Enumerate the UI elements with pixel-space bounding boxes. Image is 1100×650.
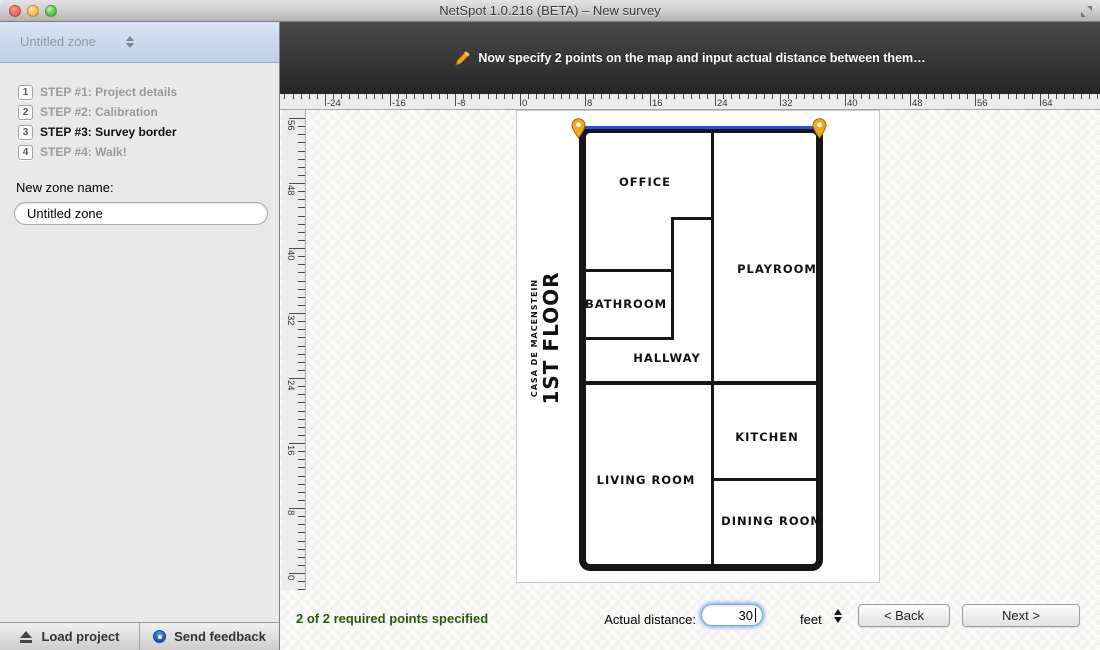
ruler-tick bbox=[423, 94, 424, 99]
ruler-tick bbox=[585, 94, 586, 106]
ruler-tick bbox=[298, 589, 306, 590]
floorplan-image[interactable]: OFFICEPLAYROOMBATHROOMHALLWAYKITCHENLIVI… bbox=[516, 110, 880, 583]
wall-kitchen-dining bbox=[714, 478, 818, 481]
ruler-tick bbox=[756, 94, 757, 99]
floor-name: 1ST FLOOR bbox=[539, 271, 563, 404]
ruler-tick bbox=[298, 370, 306, 371]
ruler-label: 64 bbox=[1042, 98, 1053, 109]
ruler-tick bbox=[626, 94, 627, 99]
ruler-tick bbox=[317, 94, 318, 99]
feedback-dot-icon bbox=[153, 630, 166, 643]
ruler-tick bbox=[349, 94, 350, 99]
ruler-tick bbox=[298, 329, 306, 330]
new-zone-name-input[interactable] bbox=[14, 202, 268, 225]
ruler-tick bbox=[298, 435, 306, 436]
ruler-tick bbox=[298, 451, 306, 452]
ruler-tick bbox=[1089, 94, 1090, 99]
ruler-tick bbox=[298, 516, 306, 517]
step-number: 3 bbox=[18, 125, 33, 140]
ruler-tick bbox=[869, 94, 870, 99]
ruler-tick bbox=[642, 94, 643, 99]
wall-office-playroom bbox=[711, 132, 714, 384]
ruler-tick bbox=[301, 94, 302, 99]
ruler-tick bbox=[298, 492, 306, 493]
steps-list: 1STEP #1: Project details2STEP #2: Calib… bbox=[18, 82, 268, 162]
ruler-tick bbox=[298, 402, 306, 403]
ruler-label: -24 bbox=[327, 98, 341, 109]
ruler-tick bbox=[504, 94, 505, 99]
step-item[interactable]: 1STEP #1: Project details bbox=[18, 82, 268, 102]
ruler-tick bbox=[289, 378, 306, 379]
ruler-tick bbox=[561, 94, 562, 99]
ruler-tick bbox=[431, 94, 432, 99]
ruler-tick bbox=[959, 94, 960, 99]
ruler-tick bbox=[298, 281, 306, 282]
unit-stepper[interactable] bbox=[834, 609, 843, 623]
ruler-tick bbox=[284, 94, 285, 99]
ruler-tick bbox=[298, 232, 306, 233]
ruler-tick bbox=[496, 94, 497, 99]
ruler-tick bbox=[886, 94, 887, 99]
ruler-tick bbox=[780, 94, 781, 106]
ruler-tick bbox=[910, 94, 911, 106]
ruler-tick bbox=[289, 443, 306, 444]
ruler-tick bbox=[298, 476, 306, 477]
ruler-tick bbox=[528, 94, 529, 99]
ruler-tick bbox=[764, 94, 765, 99]
ruler-tick bbox=[878, 94, 879, 99]
room-label: BATHROOM bbox=[556, 297, 696, 311]
room-label: LIVING ROOM bbox=[576, 473, 716, 487]
ruler-tick bbox=[298, 581, 306, 582]
step-number: 1 bbox=[18, 85, 33, 100]
room-label: OFFICE bbox=[575, 175, 715, 189]
floorplan-title: CASA DE MACENSTEIN 1ST FLOOR bbox=[516, 278, 576, 398]
ruler-label: -16 bbox=[392, 98, 406, 109]
chevron-updown-icon bbox=[125, 35, 134, 49]
ruler-tick bbox=[934, 94, 935, 99]
ruler-tick bbox=[293, 94, 294, 99]
ruler-tick bbox=[926, 94, 927, 99]
ruler-tick bbox=[298, 167, 306, 168]
zone-selector-label: Untitled zone bbox=[20, 34, 96, 49]
text-caret bbox=[755, 608, 756, 622]
ruler-tick bbox=[298, 224, 306, 225]
sidebar: Untitled zone 1STEP #1: Project details2… bbox=[0, 22, 280, 650]
ruler-tick bbox=[1064, 94, 1065, 99]
ruler-tick bbox=[298, 354, 306, 355]
ruler-horizontal: -24-16-80816243240485664 bbox=[280, 94, 1100, 110]
ruler-tick bbox=[298, 565, 306, 566]
ruler-label: 32 bbox=[782, 98, 793, 109]
ruler-label: 40 bbox=[285, 250, 296, 261]
ruler-tick bbox=[406, 94, 407, 99]
ruler-tick bbox=[479, 94, 480, 99]
ruler-tick bbox=[289, 313, 306, 314]
load-project-button[interactable]: Load project bbox=[0, 623, 139, 650]
ruler-tick bbox=[309, 94, 310, 99]
ruler-tick bbox=[298, 362, 306, 363]
ruler-tick bbox=[289, 248, 306, 249]
ruler-tick bbox=[325, 94, 326, 106]
step-label: STEP #4: Walk! bbox=[40, 145, 127, 159]
wall-hallway-living bbox=[584, 381, 818, 385]
ruler-label: 56 bbox=[285, 120, 296, 131]
ruler-tick bbox=[298, 264, 306, 265]
ruler-tick bbox=[804, 94, 805, 99]
instruction-banner: Now specify 2 points on the map and inpu… bbox=[280, 22, 1100, 94]
send-feedback-button[interactable]: Send feedback bbox=[139, 623, 279, 650]
step-number: 4 bbox=[18, 145, 33, 160]
ruler-tick bbox=[298, 134, 306, 135]
ruler-label: 48 bbox=[285, 185, 296, 196]
ruler-tick bbox=[298, 467, 306, 468]
title-bar[interactable]: NetSpot 1.0.216 (BETA) – New survey bbox=[0, 0, 1100, 22]
ruler-tick bbox=[289, 508, 306, 509]
ruler-tick bbox=[298, 394, 306, 395]
send-feedback-label: Send feedback bbox=[174, 629, 266, 644]
room-label: DINING ROOM bbox=[702, 514, 842, 528]
measure-line bbox=[579, 126, 820, 129]
ruler-tick bbox=[298, 484, 306, 485]
ruler-tick bbox=[837, 94, 838, 99]
ruler-tick bbox=[520, 94, 521, 106]
wall-bathroom-top bbox=[584, 269, 674, 272]
ruler-tick bbox=[577, 94, 578, 99]
ruler-tick bbox=[298, 386, 306, 387]
ruler-tick bbox=[796, 94, 797, 99]
room-label: PLAYROOM bbox=[707, 262, 847, 276]
ruler-tick bbox=[772, 94, 773, 99]
ruler-tick bbox=[298, 524, 306, 525]
ruler-tick bbox=[298, 321, 306, 322]
ruler-tick bbox=[731, 94, 732, 99]
fullscreen-icon[interactable] bbox=[1081, 6, 1092, 17]
distance-input[interactable] bbox=[701, 604, 763, 626]
zone-selector[interactable]: Untitled zone bbox=[0, 22, 279, 63]
ruler-tick bbox=[298, 142, 306, 143]
ruler-tick bbox=[894, 94, 895, 99]
ruler-tick bbox=[298, 305, 306, 306]
ruler-tick bbox=[298, 549, 306, 550]
ruler-tick bbox=[298, 175, 306, 176]
ruler-tick bbox=[1097, 94, 1098, 99]
next-button[interactable]: Next > bbox=[962, 604, 1080, 627]
ruler-tick bbox=[471, 94, 472, 99]
ruler-tick bbox=[1081, 94, 1082, 99]
actual-distance-label: Actual distance: bbox=[560, 612, 696, 627]
ruler-tick bbox=[439, 94, 440, 99]
ruler-tick bbox=[739, 94, 740, 99]
ruler-tick bbox=[999, 94, 1000, 99]
ruler-tick bbox=[1056, 94, 1057, 99]
ruler-tick bbox=[845, 94, 846, 106]
ruler-label: 40 bbox=[847, 98, 858, 109]
ruler-label: 56 bbox=[977, 98, 988, 109]
ruler-tick bbox=[298, 207, 306, 208]
map-pin-left[interactable] bbox=[571, 118, 586, 139]
sidebar-footer: Load project Send feedback bbox=[0, 622, 279, 650]
wall-office-nook bbox=[671, 217, 714, 220]
ruler-tick bbox=[298, 199, 306, 200]
ruler-tick bbox=[298, 557, 306, 558]
ruler-tick bbox=[414, 94, 415, 99]
room-label: KITCHEN bbox=[697, 430, 837, 444]
ruler-tick bbox=[298, 297, 306, 298]
ruler-tick bbox=[298, 419, 306, 420]
eject-icon bbox=[19, 631, 33, 643]
netspot-window: NetSpot 1.0.216 (BETA) – New survey Unti… bbox=[0, 0, 1100, 650]
ruler-tick bbox=[634, 94, 635, 99]
ruler-tick bbox=[298, 159, 306, 160]
ruler-tick bbox=[593, 94, 594, 99]
ruler-tick bbox=[902, 94, 903, 99]
ruler-tick bbox=[821, 94, 822, 99]
ruler-label: 0 bbox=[285, 575, 296, 580]
ruler-tick bbox=[298, 532, 306, 533]
ruler-label: -8 bbox=[457, 98, 465, 109]
ruler-tick bbox=[298, 272, 306, 273]
step-label: STEP #2: Calibration bbox=[40, 105, 158, 119]
wall-bathroom-bottom bbox=[584, 337, 674, 340]
ruler-tick bbox=[715, 94, 716, 106]
floorplan-outer-wall bbox=[579, 126, 823, 571]
points-status: 2 of 2 required points specified bbox=[296, 611, 488, 626]
ruler-tick bbox=[813, 94, 814, 99]
ruler-tick bbox=[650, 94, 651, 106]
step-item[interactable]: 2STEP #2: Calibration bbox=[18, 102, 268, 122]
ruler-tick bbox=[861, 94, 862, 99]
ruler-tick bbox=[298, 459, 306, 460]
ruler-tick bbox=[1016, 94, 1017, 99]
ruler-tick bbox=[298, 240, 306, 241]
ruler-tick bbox=[298, 151, 306, 152]
ruler-tick bbox=[289, 118, 306, 119]
ruler-tick bbox=[951, 94, 952, 99]
ruler-tick bbox=[298, 541, 306, 542]
ruler-tick bbox=[289, 573, 306, 574]
ruler-tick bbox=[1040, 94, 1041, 106]
ruler-tick bbox=[674, 94, 675, 99]
ruler-tick bbox=[683, 94, 684, 99]
room-label: HALLWAY bbox=[597, 351, 737, 365]
ruler-tick bbox=[298, 126, 306, 127]
ruler-label: 24 bbox=[717, 98, 728, 109]
ruler-tick bbox=[298, 216, 306, 217]
ruler-tick bbox=[829, 94, 830, 99]
ruler-label: 8 bbox=[285, 510, 296, 515]
map-pin-right[interactable] bbox=[812, 118, 827, 139]
ruler-vertical: 56484032241680 bbox=[282, 110, 306, 590]
ruler-tick bbox=[1008, 94, 1009, 99]
ruler-tick bbox=[374, 94, 375, 99]
ruler-tick bbox=[289, 183, 306, 184]
ruler-tick bbox=[618, 94, 619, 99]
ruler-tick bbox=[298, 427, 306, 428]
ruler-tick bbox=[943, 94, 944, 99]
ruler-label: 16 bbox=[652, 98, 663, 109]
ruler-tick bbox=[975, 94, 976, 106]
ruler-tick bbox=[609, 94, 610, 99]
main-area: Now specify 2 points on the map and inpu… bbox=[280, 22, 1100, 650]
ruler-label: 8 bbox=[587, 98, 592, 109]
step-number: 2 bbox=[18, 105, 33, 120]
ruler-tick bbox=[390, 94, 391, 106]
ruler-tick bbox=[707, 94, 708, 99]
step-item[interactable]: 4STEP #4: Walk! bbox=[18, 142, 268, 162]
ruler-tick bbox=[748, 94, 749, 99]
new-zone-name-label: New zone name: bbox=[16, 180, 114, 195]
ruler-tick bbox=[991, 94, 992, 99]
ruler-tick bbox=[967, 94, 968, 99]
ruler-tick bbox=[358, 94, 359, 99]
window-title: NetSpot 1.0.216 (BETA) – New survey bbox=[0, 3, 1100, 18]
back-button[interactable]: < Back bbox=[858, 604, 950, 627]
ruler-tick bbox=[298, 337, 306, 338]
ruler-tick bbox=[666, 94, 667, 99]
wall-bathroom-right bbox=[671, 217, 674, 340]
step-label: STEP #3: Survey border bbox=[40, 125, 177, 139]
ruler-label: 0 bbox=[522, 98, 527, 109]
ruler-tick bbox=[382, 94, 383, 99]
pencil-icon bbox=[454, 50, 471, 67]
ruler-tick bbox=[1032, 94, 1033, 99]
ruler-label: 16 bbox=[285, 445, 296, 456]
ruler-tick bbox=[298, 500, 306, 501]
ruler-label: 48 bbox=[912, 98, 923, 109]
ruler-tick bbox=[601, 94, 602, 99]
ruler-tick bbox=[699, 94, 700, 99]
ruler-tick bbox=[447, 94, 448, 99]
ruler-tick bbox=[569, 94, 570, 99]
ruler-tick bbox=[298, 289, 306, 290]
ruler-tick bbox=[1024, 94, 1025, 99]
step-label: STEP #1: Project details bbox=[40, 85, 177, 99]
ruler-tick bbox=[366, 94, 367, 99]
ruler-tick bbox=[544, 94, 545, 99]
ruler-label: 24 bbox=[285, 380, 296, 391]
ruler-tick bbox=[298, 346, 306, 347]
ruler-tick bbox=[553, 94, 554, 99]
ruler-tick bbox=[455, 94, 456, 106]
ruler-tick bbox=[298, 191, 306, 192]
step-item[interactable]: 3STEP #3: Survey border bbox=[18, 122, 268, 142]
ruler-label: 32 bbox=[285, 315, 296, 326]
ruler-tick bbox=[298, 411, 306, 412]
ruler-tick bbox=[691, 94, 692, 99]
load-project-label: Load project bbox=[41, 629, 119, 644]
ruler-tick bbox=[488, 94, 489, 99]
ruler-tick bbox=[341, 94, 342, 99]
unit-label: feet bbox=[800, 612, 822, 627]
banner-message: Now specify 2 points on the map and inpu… bbox=[478, 51, 925, 65]
ruler-tick bbox=[1073, 94, 1074, 99]
ruler-tick bbox=[512, 94, 513, 99]
ruler-tick bbox=[536, 94, 537, 99]
ruler-tick bbox=[298, 256, 306, 257]
building-name: CASA DE MACENSTEIN bbox=[530, 279, 539, 397]
